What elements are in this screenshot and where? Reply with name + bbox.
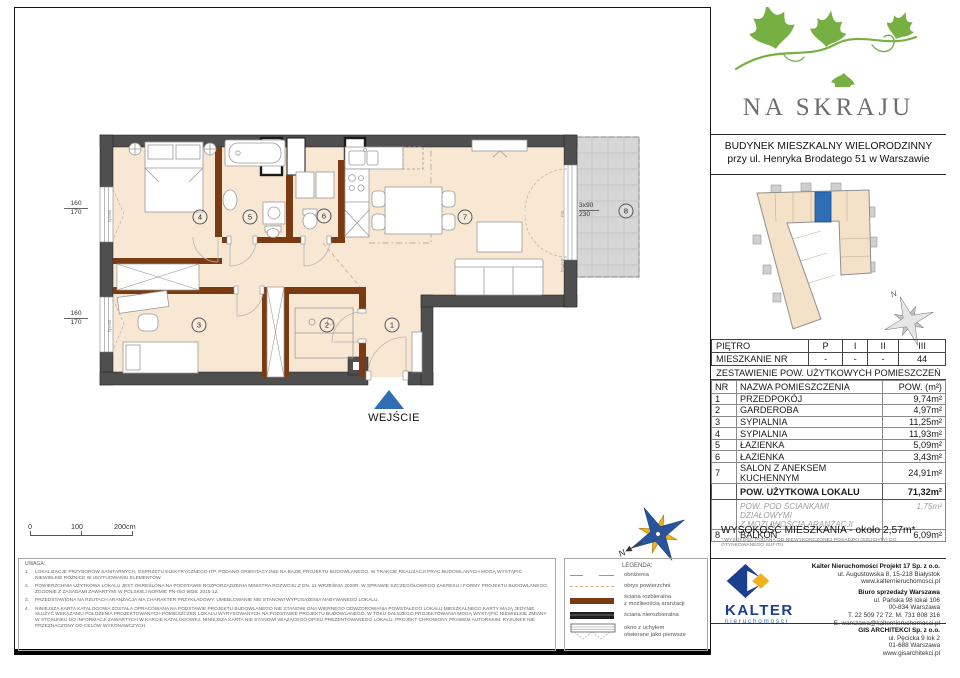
area-table-section: NRNAZWA POMIESZCZENIAPOW. (m²)1PRZEDPOKÓ… bbox=[711, 380, 946, 542]
location-row-value: P bbox=[809, 340, 843, 353]
scale-label-200: 200cm bbox=[114, 522, 136, 531]
legend-label: ściana rozbieralnaz możliwością aranżacj… bbox=[624, 594, 685, 607]
notes-title: UWAGA: bbox=[25, 562, 549, 568]
legend-swatch-removable bbox=[570, 598, 620, 604]
area-row: 2GARDEROBA4,97m² bbox=[712, 405, 946, 417]
area-row: 1PRZEDPOKÓJ9,74m² bbox=[712, 393, 946, 405]
architect-address: GIS ARCHITEKCI Sp. z o.o. ul. Pęcicka 9 … bbox=[858, 627, 940, 658]
sales-office-name: Biuro sprzedaży Warszawa bbox=[834, 589, 940, 597]
legend-item: obniżenia bbox=[570, 572, 702, 579]
legend-item: ściana nierozbieralna bbox=[570, 612, 702, 619]
notes-list: 1.LOKALIZACJE PRZYBORÓW SANITARNYCH, OSP… bbox=[25, 570, 549, 630]
location-row-value: II bbox=[868, 340, 899, 353]
kalter-logo-icon bbox=[725, 563, 783, 599]
kalter-wordmark: KALTER bbox=[725, 604, 794, 618]
legend-label: ściana nierozbieralna bbox=[624, 612, 679, 619]
notes-box: UWAGA: 1.LOKALIZACJE PRZYBORÓW SANITARNY… bbox=[18, 558, 556, 651]
ivy-logo-icon bbox=[724, 7, 934, 87]
address-line: 01-688 Warszawa bbox=[858, 642, 940, 650]
project-title: BUDYNEK MIESZKALNY WIELORODZINNY przy ul… bbox=[711, 134, 946, 174]
legend-swatch-window bbox=[570, 623, 620, 640]
scale-bar: 0 100 200cm bbox=[28, 522, 146, 548]
location-row-value: - bbox=[843, 353, 868, 366]
address-line: 00-834 Warszawa bbox=[834, 604, 940, 612]
area-row: 3SYPIALNIA11,25m² bbox=[712, 416, 946, 428]
area-row: 4SYPIALNIA11,93m² bbox=[712, 428, 946, 440]
developer-section: KALTER nieruchomości Kalter Nieruchomośc… bbox=[711, 558, 946, 623]
developer-address: Kalter Nieruchomości Projekt 17 Sp. z o.… bbox=[812, 563, 940, 586]
highlighted-unit bbox=[815, 192, 831, 222]
legend-swatch-outline bbox=[570, 586, 620, 587]
address-line: ul. Pańska 98 lokal 106 bbox=[834, 597, 940, 605]
info-panel: NA SKRAJU BUDYNEK MIESZKALNY WIELORODZIN… bbox=[710, 7, 946, 655]
address-line: ul. Augustowska 8, 15-218 Białystok bbox=[812, 571, 940, 579]
project-line2: przy ul. Henryka Brodatego 51 w Warszawi… bbox=[711, 153, 946, 166]
location-row-value: III bbox=[899, 340, 946, 353]
legend-title: LEGENDA: bbox=[622, 563, 702, 569]
scale-label-0: 0 bbox=[28, 522, 32, 531]
legend-item: obrys powierzchni bbox=[570, 583, 702, 590]
area-table-header: NRNAZWA POMIESZCZENIAPOW. (m²) bbox=[712, 381, 946, 394]
apartment-height: WYSOKOŚĆ MIESZKANIA - około 2,57m* bbox=[721, 525, 940, 536]
floor-plan-drawing bbox=[60, 112, 680, 442]
height-section: WYSOKOŚĆ MIESZKANIA - około 2,57m* * WYS… bbox=[711, 521, 946, 561]
area-row: 6ŁAZIENKA3,43m² bbox=[712, 451, 946, 463]
kalter-logo: KALTER nieruchomości bbox=[725, 563, 794, 625]
note-item: 3.PRZEDSTAWIONA NA RZUTACH ARANŻACJA MA … bbox=[25, 598, 549, 604]
floor-location-table: PIĘTROPIIIIIIMIESZKANIE NR---44 bbox=[711, 339, 946, 365]
location-row-value: - bbox=[809, 353, 843, 366]
architect-section: GIS ARCHITEKCI Sp. z o.o. ul. Pęcicka 9 … bbox=[711, 623, 946, 655]
brand-name: NA SKRAJU bbox=[711, 94, 946, 122]
height-footnote: * WYSOKOŚĆ PODANA OD NIEWYKOŃCZONEJ POSA… bbox=[721, 538, 940, 548]
legend-items: obniżeniaobrys powierzchniściana rozbier… bbox=[570, 572, 702, 640]
location-row: MIESZKANIE NR---44 bbox=[712, 353, 946, 366]
area-table-title: ZESTAWIENIE POW. UŻYTKOWYCH POMIESZCZEŃ bbox=[711, 365, 946, 380]
location-row-value: 44 bbox=[899, 353, 946, 366]
col-nr: NR bbox=[712, 381, 737, 394]
address-line: www.kalternieruchomosci.pl bbox=[812, 578, 940, 586]
developer-name: Kalter Nieruchomości Projekt 17 Sp. z o.… bbox=[812, 563, 940, 571]
legend-label: obniżenia bbox=[624, 572, 649, 579]
note-item: 2.POWIERZCHNIA UŻYTKOWA LOKALU JEST OKRE… bbox=[25, 584, 549, 596]
scale-label-100: 100 bbox=[71, 522, 83, 531]
address-line: ul. Pęcicka 9 lok 2 bbox=[858, 635, 940, 643]
legend-box: LEGENDA: obniżeniaobrys powierzchniścian… bbox=[564, 558, 708, 651]
legend-label: obrys powierzchni bbox=[624, 583, 670, 590]
legend-label: okno z uchyłemotwierane jako pierwsze bbox=[624, 625, 686, 638]
note-item: 1.LOKALIZACJE PRZYBORÓW SANITARNYCH, OSP… bbox=[25, 570, 549, 582]
location-row-value: - bbox=[868, 353, 899, 366]
area-row: 5ŁAZIENKA5,09m² bbox=[712, 439, 946, 451]
legend-swatch-lower bbox=[570, 575, 620, 576]
legend-item: ściana rozbieralnaz możliwością aranżacj… bbox=[570, 594, 702, 607]
area-row: 7SALON Z ANEKSEM KUCHENNYM24,91m² bbox=[712, 463, 946, 484]
note-item: 4.NINIEJSZA KARTA KATALOGOWA ZOSTAŁA OPR… bbox=[25, 607, 549, 630]
project-line1: BUDYNEK MIESZKALNY WIELORODZINNY bbox=[711, 140, 946, 153]
brand-section: NA SKRAJU bbox=[711, 7, 946, 134]
location-row: PIĘTROPIIIIII bbox=[712, 340, 946, 353]
location-row-label: PIĘTRO bbox=[712, 340, 809, 353]
architect-name: GIS ARCHITEKCI Sp. z o.o. bbox=[858, 627, 940, 635]
col-area: POW. (m²) bbox=[883, 381, 946, 394]
legend-swatch-solid bbox=[570, 612, 620, 619]
address-line: T. 22 509 72 72. M. 731 808 316 bbox=[834, 612, 940, 620]
sales-office-address: Biuro sprzedaży Warszawa ul. Pańska 98 l… bbox=[834, 589, 940, 628]
location-row-label: MIESZKANIE NR bbox=[712, 353, 809, 366]
site-north-letter: N bbox=[890, 289, 899, 299]
address-line: www.gisarchitekci.pl bbox=[858, 650, 940, 658]
area-total-row: POW. UŻYTKOWA LOKALU71,32m² bbox=[712, 484, 946, 500]
col-name: NAZWA POMIESZCZENIA bbox=[737, 381, 883, 394]
floor-plan: WEJŚCIE 123456781601701601703x90230hp=60… bbox=[60, 112, 680, 442]
location-row-value: I bbox=[843, 340, 868, 353]
balcony bbox=[577, 137, 639, 277]
site-plan-section: N bbox=[711, 174, 946, 339]
legend-item: okno z uchyłemotwierane jako pierwsze bbox=[570, 623, 702, 640]
